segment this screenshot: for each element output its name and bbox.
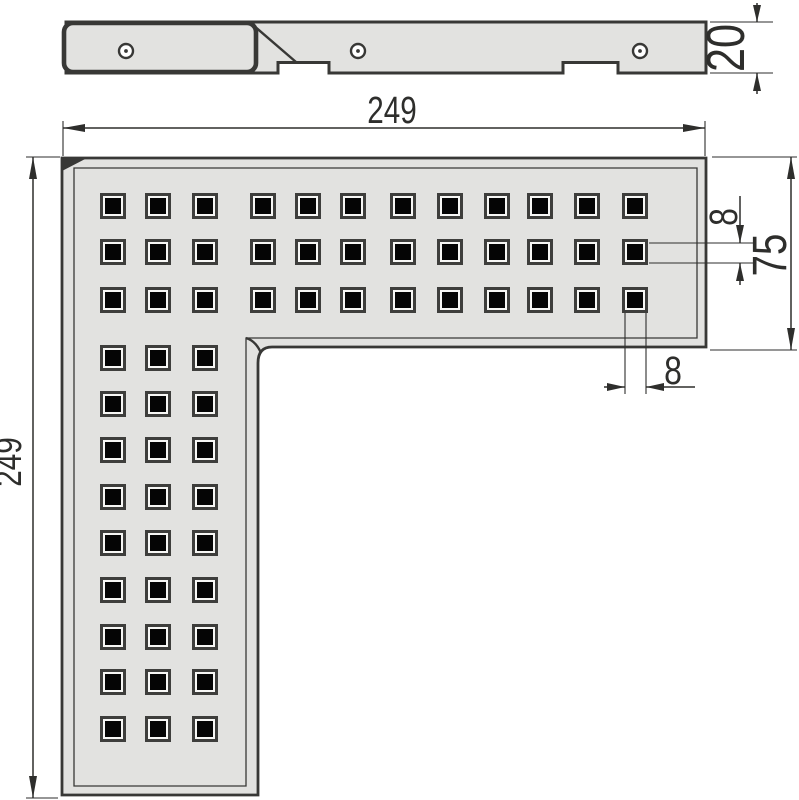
hole-opening	[489, 292, 505, 308]
hole-opening	[627, 198, 643, 214]
grate-hole-r4c1	[100, 345, 126, 371]
grate-hole-r7c3	[192, 484, 218, 510]
hole-opening	[150, 535, 166, 551]
grate-hole-r10c2	[145, 624, 171, 650]
hole-opening	[579, 244, 595, 260]
grate-hole-r7c1	[100, 484, 126, 510]
hole-opening	[197, 629, 213, 645]
hole-opening	[579, 198, 595, 214]
arrow-down-icon	[736, 225, 744, 243]
dim-hole-height-label: 8	[701, 208, 746, 226]
grate-hole-r1c6	[340, 193, 366, 219]
grate-hole-r1c9	[484, 193, 510, 219]
dim-hole-width-label: 8	[664, 348, 682, 393]
plan-view	[62, 157, 706, 795]
grate-hole-r11c1	[100, 669, 126, 695]
grate-hole-r12c2	[145, 716, 171, 742]
grate-hole-r3c3	[192, 287, 218, 313]
grate-hole-r2c12	[622, 239, 648, 265]
dim-left-height-label: 249	[0, 437, 30, 486]
hole-opening	[532, 244, 548, 260]
grate-hole-r12c3	[192, 716, 218, 742]
grate-hole-r5c2	[145, 391, 171, 417]
grate-hole-r1c10	[527, 193, 553, 219]
dim-top-width: 249	[63, 90, 705, 156]
hole-opening	[150, 198, 166, 214]
grate-hole-r6c2	[145, 437, 171, 463]
grate-hole-r3c9	[484, 287, 510, 313]
hole-opening	[255, 292, 271, 308]
grate-hole-r1c11	[574, 193, 600, 219]
grate-hole-r3c10	[527, 287, 553, 313]
hole-opening	[395, 244, 411, 260]
grate-hole-r9c2	[145, 577, 171, 603]
grate-hole-r10c1	[100, 624, 126, 650]
hole-opening	[105, 535, 121, 551]
arrow-down-icon	[787, 328, 795, 350]
hole-opening	[489, 244, 505, 260]
hole-opening	[197, 535, 213, 551]
dim-arm-width-label: 75	[744, 234, 797, 277]
arrow-down-icon	[753, 5, 761, 22]
hole-opening	[105, 396, 121, 412]
hole-opening	[150, 489, 166, 505]
dim-profile-height-label: 20	[697, 24, 757, 72]
hole-opening	[105, 582, 121, 598]
hole-opening	[300, 198, 316, 214]
grate-hole-r2c11	[574, 239, 600, 265]
hole-opening	[442, 244, 458, 260]
rivet-2	[351, 44, 365, 58]
hole-opening	[395, 198, 411, 214]
grate-hole-r3c5	[295, 287, 321, 313]
hole-opening	[150, 582, 166, 598]
arrow-up-icon	[29, 157, 37, 179]
grate-hole-r3c11	[574, 287, 600, 313]
hole-opening	[150, 396, 166, 412]
rivet-1	[119, 44, 133, 58]
rivet-center-dot	[638, 49, 642, 53]
grate-hole-r9c1	[100, 577, 126, 603]
rivet-center-dot	[124, 49, 128, 53]
hole-opening	[197, 350, 213, 366]
hole-opening	[150, 244, 166, 260]
grate-hole-r2c5	[295, 239, 321, 265]
hole-opening	[197, 674, 213, 690]
side-view	[64, 22, 706, 73]
hole-opening	[627, 292, 643, 308]
grate-hole-r2c7	[390, 239, 416, 265]
technical-drawing: 20 249 249 75 8	[0, 0, 799, 800]
grate-hole-r5c1	[100, 391, 126, 417]
grate-hole-r2c1	[100, 239, 126, 265]
hole-opening	[105, 721, 121, 737]
hole-opening	[150, 292, 166, 308]
grate-hole-r2c4	[250, 239, 276, 265]
grate-hole-r2c3	[192, 239, 218, 265]
hole-opening	[197, 396, 213, 412]
grate-hole-r3c12	[622, 287, 648, 313]
grate-hole-r11c2	[145, 669, 171, 695]
grate-hole-r1c7	[390, 193, 416, 219]
grate-hole-r12c1	[100, 716, 126, 742]
arrow-right-icon	[607, 383, 625, 391]
hole-opening	[255, 198, 271, 214]
grate-hole-r3c8	[437, 287, 463, 313]
profile-end-cap	[64, 23, 256, 72]
grate-hole-r1c3	[192, 193, 218, 219]
hole-opening	[105, 629, 121, 645]
hole-opening	[105, 292, 121, 308]
hole-opening	[197, 489, 213, 505]
grate-hole-r8c1	[100, 530, 126, 556]
arrow-left-icon	[646, 383, 664, 391]
arrow-down-icon	[29, 776, 37, 798]
grate-hole-r1c5	[295, 193, 321, 219]
hole-opening	[532, 198, 548, 214]
grate-hole-r9c3	[192, 577, 218, 603]
grate-hole-r3c2	[145, 287, 171, 313]
hole-opening	[150, 629, 166, 645]
grate-hole-r8c2	[145, 530, 171, 556]
hole-opening	[105, 244, 121, 260]
hole-opening	[197, 442, 213, 458]
hole-opening	[532, 292, 548, 308]
hole-opening	[442, 292, 458, 308]
grate-hole-r4c2	[145, 345, 171, 371]
grate-hole-r3c4	[250, 287, 276, 313]
hole-opening	[150, 674, 166, 690]
hole-opening	[345, 198, 361, 214]
grate-hole-r1c8	[437, 193, 463, 219]
arrow-up-icon	[753, 73, 761, 91]
hole-opening	[579, 292, 595, 308]
hole-opening	[105, 198, 121, 214]
grate-hole-r2c8	[437, 239, 463, 265]
grate-hole-r3c1	[100, 287, 126, 313]
arrow-left-icon	[63, 124, 85, 132]
hole-opening	[150, 721, 166, 737]
grate-hole-r3c6	[340, 287, 366, 313]
hole-opening	[150, 350, 166, 366]
dim-top-width-label: 249	[367, 90, 416, 132]
hole-opening	[300, 244, 316, 260]
rivet-3	[633, 44, 647, 58]
dim-profile-height: 20	[697, 3, 773, 94]
hole-opening	[105, 489, 121, 505]
hole-opening	[395, 292, 411, 308]
hole-opening	[105, 442, 121, 458]
hole-opening	[627, 244, 643, 260]
hole-opening	[345, 244, 361, 260]
hole-opening	[300, 292, 316, 308]
grate-hole-r8c3	[192, 530, 218, 556]
grate-hole-r2c9	[484, 239, 510, 265]
hole-opening	[197, 721, 213, 737]
arrow-up-icon	[736, 263, 744, 281]
grate-hole-r6c3	[192, 437, 218, 463]
grate-hole-r1c4	[250, 193, 276, 219]
dim-left-height: 249	[0, 157, 60, 798]
hole-opening	[197, 198, 213, 214]
hole-opening	[345, 292, 361, 308]
arrow-up-icon	[787, 157, 795, 179]
grate-hole-r10c3	[192, 624, 218, 650]
hole-opening	[197, 582, 213, 598]
arrow-right-icon	[683, 124, 705, 132]
grate-hole-r7c2	[145, 484, 171, 510]
hole-opening	[255, 244, 271, 260]
grate-hole-r6c1	[100, 437, 126, 463]
hole-opening	[197, 292, 213, 308]
dim-arm-width: 75	[710, 157, 797, 350]
hole-opening	[150, 442, 166, 458]
grate-hole-r2c6	[340, 239, 366, 265]
hole-opening	[105, 350, 121, 366]
rivet-center-dot	[356, 49, 360, 53]
hole-opening	[442, 198, 458, 214]
hole-opening	[489, 198, 505, 214]
grate-hole-r1c2	[145, 193, 171, 219]
grate-hole-r2c2	[145, 239, 171, 265]
grate-hole-r5c3	[192, 391, 218, 417]
grate-hole-r4c3	[192, 345, 218, 371]
grate-hole-r1c12	[622, 193, 648, 219]
grate-hole-r2c10	[527, 239, 553, 265]
grate-hole-r11c3	[192, 669, 218, 695]
hole-opening	[105, 674, 121, 690]
grate-hole-r3c7	[390, 287, 416, 313]
grate-hole-r1c1	[100, 193, 126, 219]
hole-opening	[197, 244, 213, 260]
